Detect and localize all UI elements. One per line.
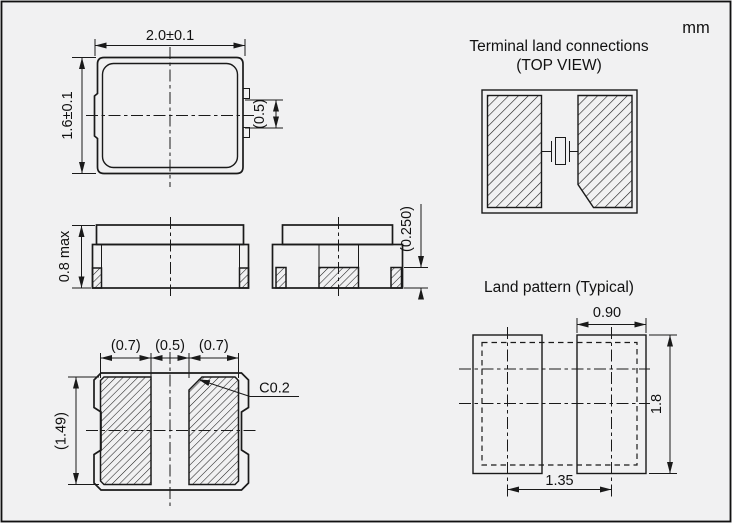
front-view-terminal-left: [93, 268, 102, 288]
end-view-drawing: (0.250): [273, 204, 429, 298]
dim-bottom-view-left-pad: (0.7): [111, 338, 141, 354]
dim-end-view-terminal-thickness: (0.250): [399, 206, 415, 252]
unit-label: mm: [682, 19, 710, 37]
side-terminal-mark-top: [243, 89, 250, 99]
mechanical-drawing-canvas: 2.0±0.1 1.6±0.1 (0.5) 0.8 max: [0, 0, 732, 523]
side-terminal-mark-bottom: [243, 128, 250, 138]
front-view-drawing: 0.8 max: [57, 217, 249, 296]
terminal-land-subtitle: (TOP VIEW): [516, 57, 602, 74]
dim-top-view-height: 1.6±0.1: [60, 91, 76, 139]
dim-land-pattern-pad-width: 0.90: [593, 305, 621, 321]
dim-top-view-width: 2.0±0.1: [146, 28, 194, 44]
land-pattern-panel: Land pattern (Typical) 0.90 1.8 1.35: [459, 279, 677, 498]
dim-bottom-view-right-pad: (0.7): [199, 338, 229, 354]
terminal-land-pad-left: [488, 96, 542, 208]
datasheet-drawing-page: 2.0±0.1 1.6±0.1 (0.5) 0.8 max: [0, 0, 732, 523]
land-pattern-title: Land pattern (Typical): [484, 279, 634, 296]
dim-bottom-view-pad-length: (1.49): [53, 412, 69, 450]
dim-bottom-view-chamfer: C0.2: [259, 381, 290, 397]
top-view-drawing: 2.0±0.1 1.6±0.1 (0.5): [60, 28, 283, 187]
terminal-land-title: Terminal land connections: [469, 38, 648, 55]
bottom-view-drawing: (0.7) (0.5) (0.7) (1.49) C0.2: [53, 338, 299, 506]
dim-front-view-height: 0.8 max: [57, 230, 73, 282]
end-view-lid: [283, 225, 393, 245]
end-view-terminal-right: [391, 268, 402, 289]
terminal-land-connections-panel: mm Terminal land connections (TOP VIEW): [469, 19, 709, 213]
dim-land-pattern-pitch: 1.35: [545, 473, 573, 489]
crystal-symbol: [542, 138, 579, 165]
dim-top-view-terminal: (0.5): [252, 99, 268, 129]
end-view-terminal-left: [276, 268, 286, 289]
dim-land-pattern-pad-height: 1.8: [649, 394, 665, 414]
front-view-terminal-right: [240, 268, 249, 288]
terminal-land-pad-right: [578, 96, 632, 208]
dim-bottom-view-gap: (0.5): [155, 338, 185, 354]
